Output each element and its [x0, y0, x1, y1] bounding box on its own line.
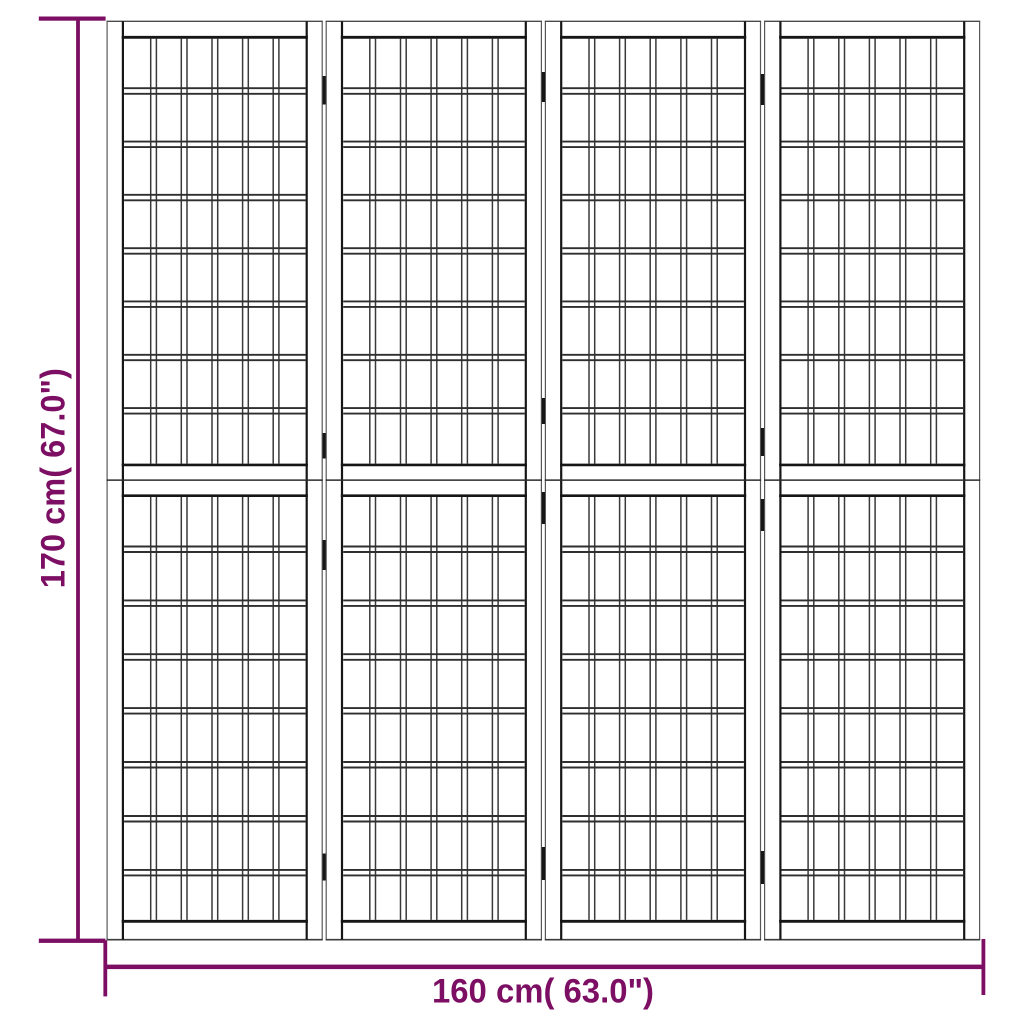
svg-text:170 cm( 67.0"): 170 cm( 67.0"): [35, 368, 73, 588]
svg-text:160 cm( 63.0"): 160 cm( 63.0"): [432, 973, 654, 1011]
